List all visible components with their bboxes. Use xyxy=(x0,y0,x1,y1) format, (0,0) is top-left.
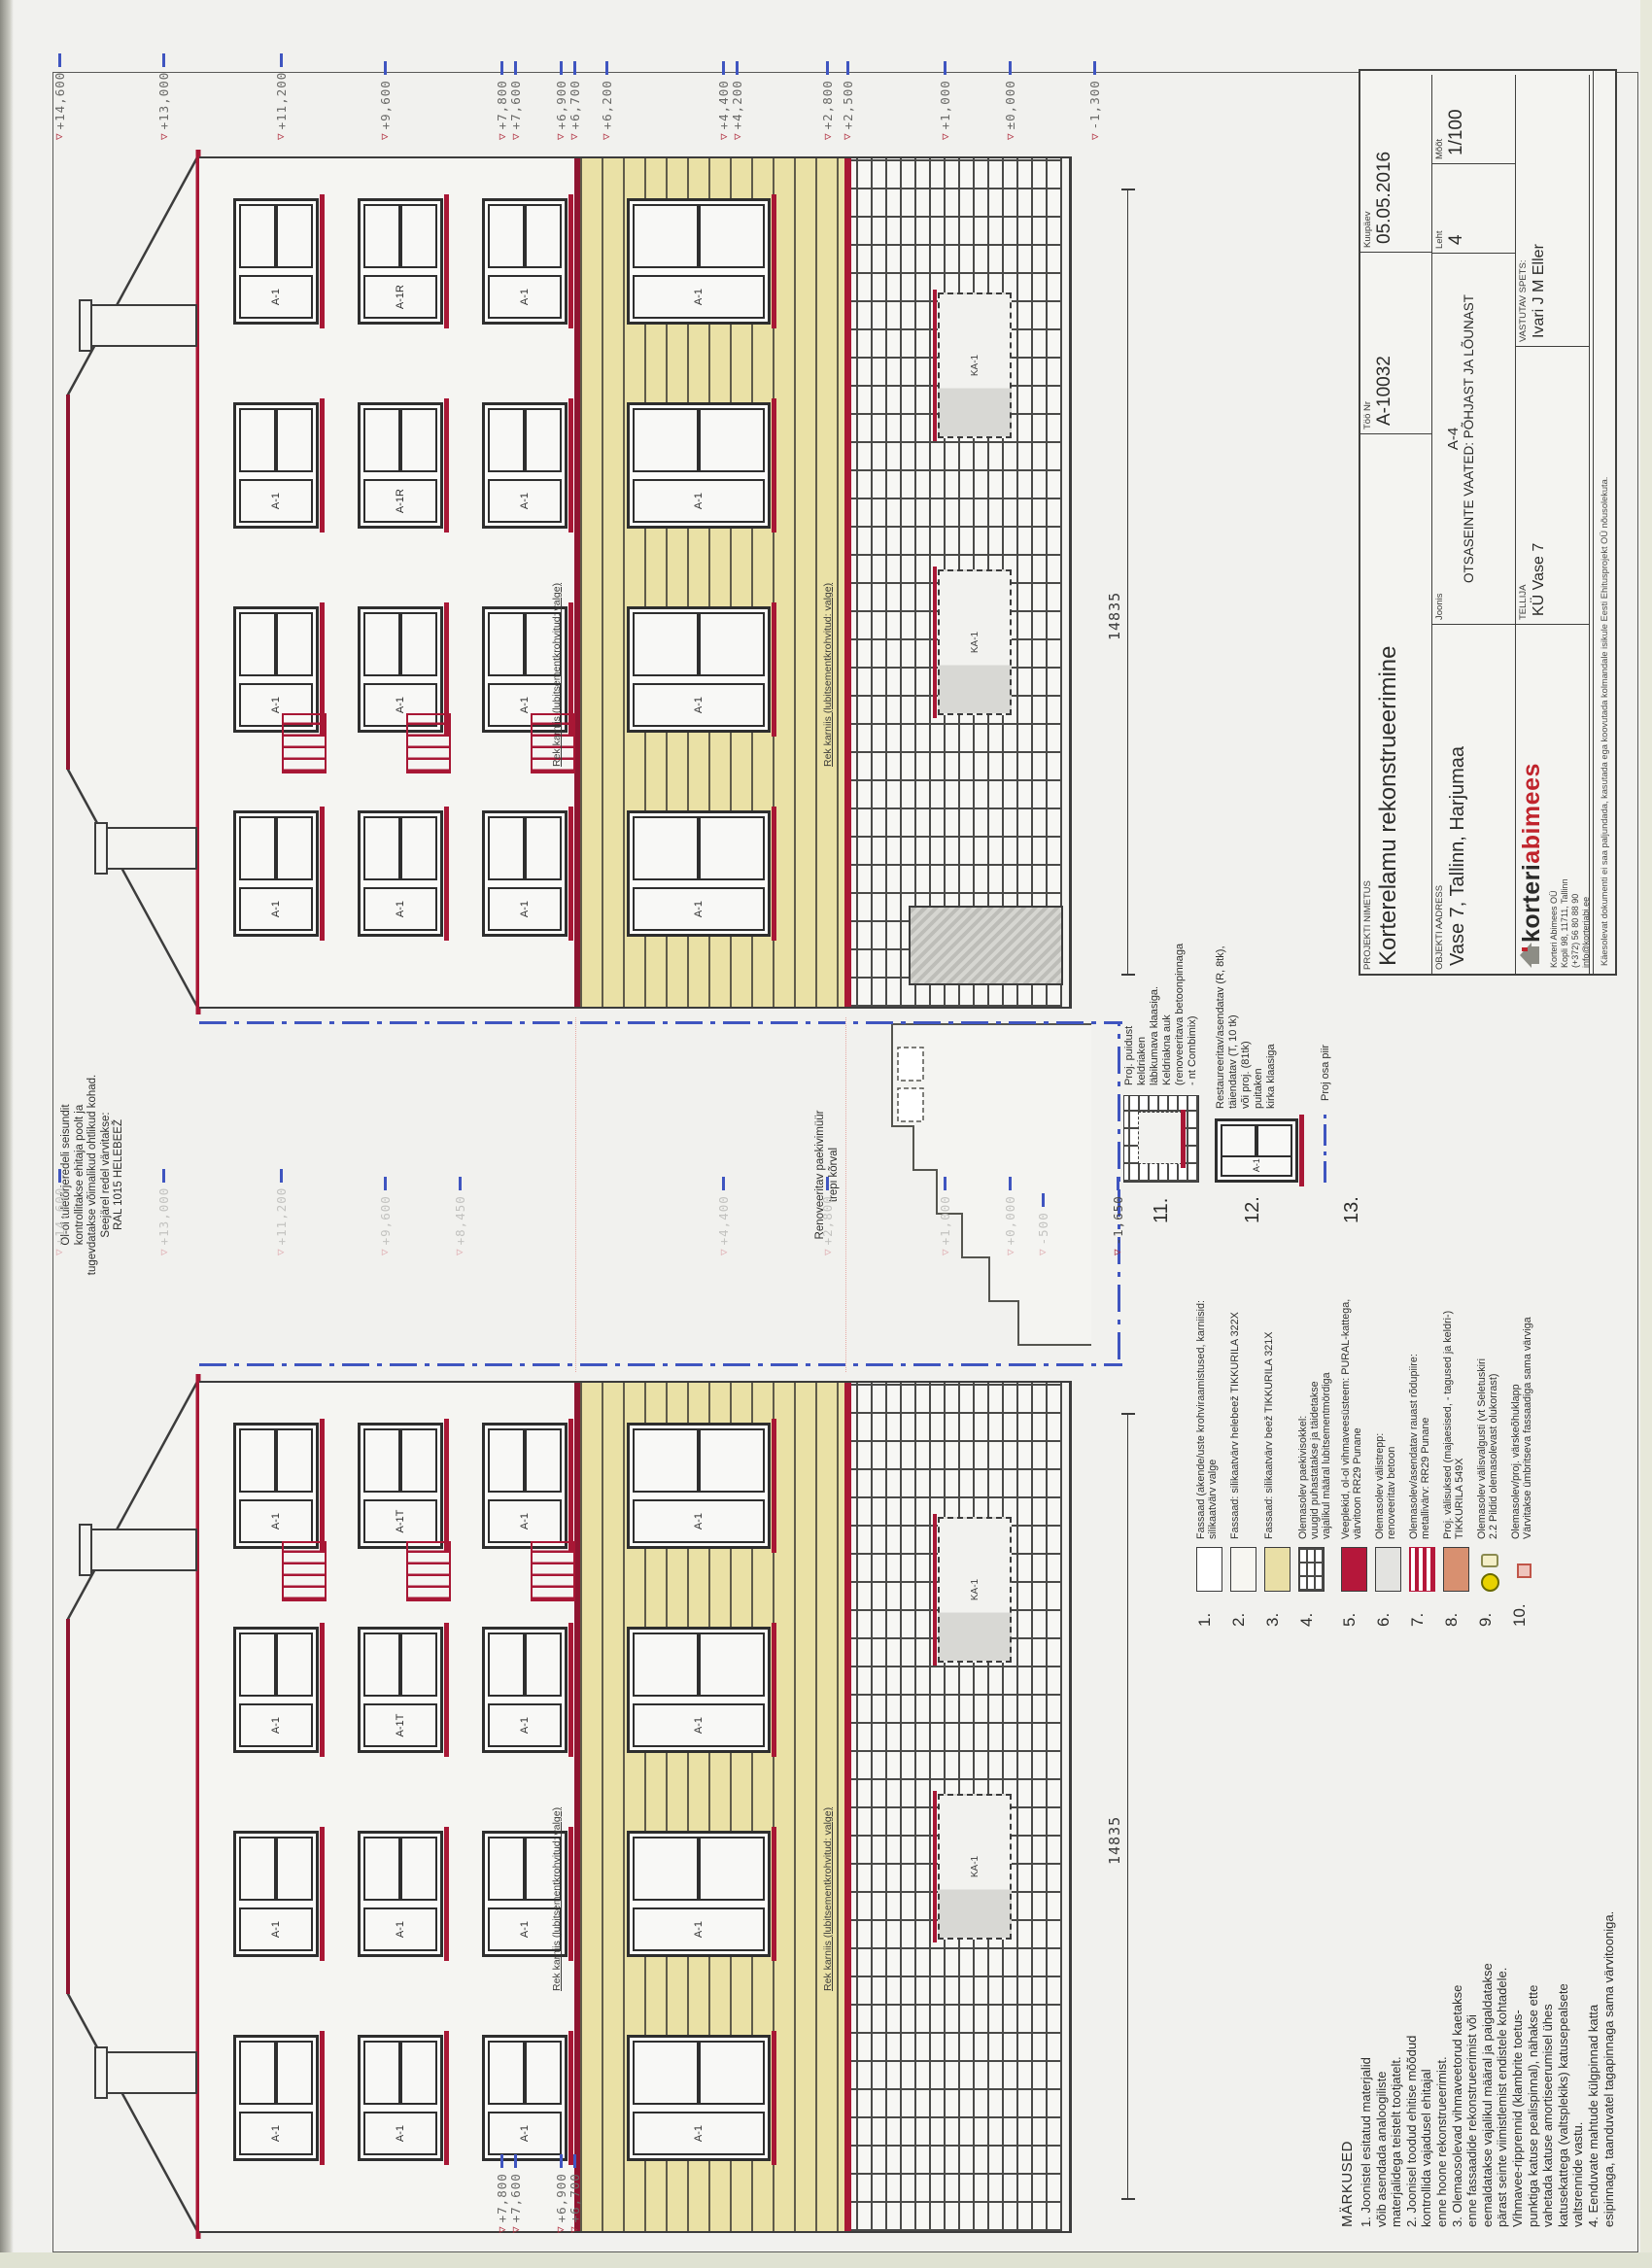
level-value: +7,600 xyxy=(508,2173,523,2222)
window-pane xyxy=(525,1428,562,1493)
window-label: A-1R xyxy=(363,275,437,319)
level-tick xyxy=(162,53,165,67)
date-value: 05.05.2016 xyxy=(1373,75,1396,252)
window-pane xyxy=(633,408,699,472)
work-no-value: A-10032 xyxy=(1373,253,1396,433)
level-tick xyxy=(560,2154,563,2168)
window: A-1T xyxy=(358,1627,443,1753)
level-tick xyxy=(560,61,563,75)
legend-item: 9.Olemasolev välisvalgusti (vt Seletuski… xyxy=(1476,1238,1503,1627)
facade-wall: A-1A-1A-1A-1A-1A-1A-1RA-1RA-1A-1A-1A-1A-… xyxy=(199,156,1072,1009)
scale-label: Mõõt xyxy=(1432,75,1445,163)
level-tick xyxy=(514,2154,517,2168)
level-tick xyxy=(58,1169,61,1183)
window: A-1 xyxy=(233,198,319,325)
notes-title: MÄRKUSED xyxy=(1339,1644,1356,2227)
level-value: ±0,000 xyxy=(1003,80,1017,129)
legend-item: 10.Olemasolev/proj. värskeõhuklappVärvit… xyxy=(1510,1238,1537,1627)
legend-text-line: Proj. välisuksed (majaesised, - tagused … xyxy=(1442,1311,1454,1539)
legend-item-number: 7. xyxy=(1408,1592,1428,1627)
client-cell: TELLIJA KÜ Vase 7 xyxy=(1516,346,1590,624)
level-tick xyxy=(722,1177,725,1190)
legend-text-line: Olemasolev välistrepp: xyxy=(1374,1433,1386,1539)
level-value: +11,200 xyxy=(274,72,289,130)
window: A-1 xyxy=(482,198,568,325)
note-line: materjalidega teistelt tootjatelt. xyxy=(1389,1644,1404,2227)
window-pane xyxy=(363,408,400,472)
elevation-vaade-pohjast: A-1A-1A-1A-1A-1A-1A-1TA-1TA-1A-1A-1A-1A-… xyxy=(58,1374,1137,2239)
window-label: A-1 xyxy=(488,887,562,931)
level-mark-right: ▽+6,900 xyxy=(554,61,568,140)
level-mark-right: ▽+6,200 xyxy=(600,61,614,140)
note-line: punktiga katuse pealispinnal), nähakse e… xyxy=(1526,1644,1541,2227)
level-mark-right: ▽+13,000 xyxy=(156,53,171,140)
legend-text-line: Olemasolev/proj. värskeõhuklapp xyxy=(1510,1317,1522,1539)
window: A-1 xyxy=(358,810,443,937)
window-pane xyxy=(363,816,400,880)
drawing-title: OTSASEINTE VAATED: PÕHJAST JA LÕUNAST xyxy=(1462,254,1477,624)
window-label: A-1 xyxy=(239,2112,313,2155)
level-mark-right: ▽+2,800 xyxy=(820,61,835,140)
level-mark-right: ▽+1,000 xyxy=(938,61,952,140)
basement-window: KA-1 xyxy=(938,292,1012,438)
level-marker-icon: ▽ xyxy=(602,132,611,140)
level-marker-icon: ▽ xyxy=(823,1248,833,1255)
legend-text-line: puitaken xyxy=(1253,945,1265,1109)
paekivi-label-line: Renoveeritav paekivimüür xyxy=(814,1019,828,1330)
company-info-line: Kopli 98, 11711, Tallinn xyxy=(1560,631,1570,968)
legend-item-text: Olemasolev välisvalgusti (vt Seletuskiri… xyxy=(1476,1358,1499,1539)
window-pane xyxy=(1221,1124,1256,1157)
level-value: +0,000 xyxy=(1003,1195,1017,1245)
level-marker-icon: ▽ xyxy=(276,1248,286,1255)
window-pane xyxy=(239,204,276,268)
legend-text-line: keldriaken xyxy=(1136,944,1149,1085)
level-mark-right: ▽+9,600 xyxy=(378,61,393,140)
legend-detail-item: 13.Proj osa piir xyxy=(1314,932,1363,1223)
level-mark-left: ▽+7,600 xyxy=(508,2154,523,2233)
level-marker-icon: ▽ xyxy=(941,132,950,140)
level-marker-icon: ▽ xyxy=(569,132,579,140)
address-cell: OBJEKTI AADRESS Vase 7, Tallinn, Harjuma… xyxy=(1432,624,1516,974)
window-pane xyxy=(525,1632,562,1697)
level-mark-middle: ▽+13,000 xyxy=(156,1169,171,1255)
window-pane xyxy=(525,408,562,472)
level-marker-icon: ▽ xyxy=(1006,132,1015,140)
drawing-code: A-4 xyxy=(1445,254,1462,624)
legend-item-text: Olemasolev välistrepp:renoveeritav betoo… xyxy=(1374,1433,1397,1539)
cornice-band xyxy=(573,158,580,1007)
facade-wall: A-1A-1A-1A-1A-1A-1A-1TA-1TA-1A-1A-1A-1A-… xyxy=(199,1381,1072,2233)
legend-text-line: Fassaad: silikaatvärv beež TIKKURILA 321… xyxy=(1263,1332,1275,1539)
drawing-label: Joonis xyxy=(1432,254,1445,624)
scale-value: 1/100 xyxy=(1445,75,1468,163)
scan-edge-bottom xyxy=(0,2252,1652,2268)
level-tick xyxy=(280,53,283,67)
level-value: +2,800 xyxy=(820,80,835,129)
legend-text-line: kirka klaasiga xyxy=(1265,945,1278,1109)
level-value: +4,400 xyxy=(716,80,731,129)
window-pane xyxy=(363,612,400,676)
legend-item-text: Olemasolev/proj. värskeõhuklappVärvitaks… xyxy=(1510,1317,1533,1539)
level-mark-right: ▽-1,300 xyxy=(1087,61,1102,140)
legend-item-number: 3. xyxy=(1263,1592,1283,1627)
legend-details: 11.Proj. puidustkeldriakenläbikumava kla… xyxy=(1123,932,1379,1223)
window: A-1R xyxy=(358,198,443,325)
window: A-1 xyxy=(482,1627,568,1753)
window-pane xyxy=(400,1632,437,1697)
window-label: A-1 xyxy=(633,683,765,727)
dimension-line xyxy=(1127,1413,1128,2200)
note-line: esipinnaga, taanduvatel tagapinnaga sama… xyxy=(1601,1644,1617,2227)
legend-text-line: - nt Combimix) xyxy=(1187,944,1199,1085)
company-logo: korteriabimees xyxy=(1518,631,1546,968)
window-pane xyxy=(699,408,765,472)
legend-swatch xyxy=(1264,1547,1291,1592)
legend-item-text: Fassaad: silikaatvärv beež TIKKURILA 321… xyxy=(1263,1332,1275,1539)
level-mark-right: ▽+6,700 xyxy=(568,61,582,140)
construction-guide-line xyxy=(845,1017,846,1372)
level-mark-middle: ▽+1,000 xyxy=(938,1177,952,1255)
window-label: A-1 xyxy=(488,2112,562,2155)
level-mark-right: ▽±0,000 xyxy=(1003,61,1017,140)
legend-text-line: 2.2 Pildid olemasolevast olukorrast) xyxy=(1488,1358,1499,1539)
client-label: TELLIJA xyxy=(1516,347,1529,624)
legend-item-text: Proj. välisuksed (majaesised, - tagused … xyxy=(1442,1311,1465,1539)
level-tick xyxy=(722,61,725,75)
legend: 1.Fassaad (akende/uste krohviraamistused… xyxy=(1195,1238,1544,1627)
scale-cell: Mõõt 1/100 xyxy=(1432,75,1516,163)
legend-text-line: Proj osa piir xyxy=(1320,1045,1332,1101)
legend-text-line: läbikumava klaasiga. xyxy=(1149,944,1161,1085)
balcony-railing xyxy=(282,713,327,773)
legend-item-number: 12. xyxy=(1242,1183,1264,1223)
window: A-1 xyxy=(627,1627,771,1753)
level-marker-icon: ▽ xyxy=(719,1248,729,1255)
legend-item-number: 5. xyxy=(1340,1592,1359,1627)
note-line: 1. Joonistel esitatud materjalid xyxy=(1359,1644,1374,2227)
window-pane xyxy=(633,816,699,880)
note-line: katusekattega (valtsplekiks) katusepeals… xyxy=(1556,1644,1571,2227)
window-label: A-1 xyxy=(633,1907,765,1951)
level-mark-right: ▽+4,400 xyxy=(716,61,731,140)
window: A-1 xyxy=(358,2035,443,2161)
project-name: Korterelamu rekonstrueerimine xyxy=(1373,434,1404,974)
level-value: +2,500 xyxy=(841,80,855,129)
level-marker-icon: ▽ xyxy=(498,132,507,140)
window-pane xyxy=(488,1428,525,1493)
legend-swatch xyxy=(1298,1547,1325,1592)
window-pane xyxy=(363,2041,400,2105)
window-pane xyxy=(276,408,313,472)
window: A-1 xyxy=(627,810,771,937)
date-cell: Kuupäev 05.05.2016 xyxy=(1360,75,1432,252)
legend-text-line: Fassaad: silikaatvärv helebeež TIKKURILA… xyxy=(1229,1312,1241,1539)
window-pane xyxy=(699,204,765,268)
window-label: A-1 xyxy=(488,1499,562,1543)
legend-item-text: Veeplekid, ol-ol vihmaveesüsteem: PURAL-… xyxy=(1340,1299,1363,1539)
level-tick xyxy=(280,1169,283,1183)
dimension-value: 14835 xyxy=(1106,592,1123,640)
level-tick xyxy=(384,61,387,75)
ladder-note-line: Seejärel redel värvitakse: xyxy=(100,1039,114,1311)
company-info: Korteri Abimees OÜKopli 98, 11711, Talli… xyxy=(1549,631,1590,968)
window-pane xyxy=(488,816,525,880)
level-marker-icon: ▽ xyxy=(556,132,566,140)
level-value: +6,200 xyxy=(600,80,614,129)
legend-swatch xyxy=(1511,1547,1537,1592)
window-label: A-1R xyxy=(363,479,437,523)
legend-swatch xyxy=(1375,1547,1401,1592)
level-tick xyxy=(573,61,576,75)
legend-detail-text: Restaureeritav/asendatav (R, 8tk),täiend… xyxy=(1215,945,1278,1109)
house-icon xyxy=(1520,943,1539,968)
legend-detail-item: 12.A-1Restaureeritav/asendatav (R, 8tk),… xyxy=(1215,932,1298,1223)
level-marker-icon: ▽ xyxy=(54,132,64,140)
level-value: +7,800 xyxy=(495,2173,509,2222)
legend-text-line: renoveeritav betoon xyxy=(1386,1433,1397,1539)
legend-text-line: Keldriakna auk xyxy=(1161,944,1174,1085)
window: A-1 xyxy=(1215,1118,1298,1183)
window-pane xyxy=(239,1837,276,1901)
legend-text-line: värvitoon RR29 Punane xyxy=(1352,1299,1363,1539)
legend-text-line: täiendatav (T, 10 tk) xyxy=(1227,945,1240,1109)
level-mark-middle: ▽-500 xyxy=(1036,1193,1050,1255)
window-pane xyxy=(633,1632,699,1697)
window-pane xyxy=(363,1428,400,1493)
legend-text-line: Olemasolev/asendatav rauast rõdupiire: xyxy=(1408,1354,1420,1539)
lamp-icon xyxy=(1481,1573,1499,1592)
note-line: vahetada katuse amortiseerumisel ühes xyxy=(1540,1644,1556,2227)
window-pane xyxy=(525,204,562,268)
level-marker-icon: ▽ xyxy=(733,132,742,140)
legend-item: 5.Veeplekid, ol-ol vihmaveesüsteem: PURA… xyxy=(1340,1238,1367,1627)
spec-label: VASTUTAV SPETS: xyxy=(1516,75,1529,346)
veeplekk-band xyxy=(844,1383,851,2231)
legend-text-line: Olemasolev paekivisokkel: xyxy=(1297,1372,1309,1539)
level-value: +6,900 xyxy=(554,80,568,129)
level-marker-icon: ▽ xyxy=(1113,1248,1122,1255)
level-tick xyxy=(1117,1177,1119,1190)
window-pane xyxy=(633,1428,699,1493)
legend-swatch xyxy=(1230,1547,1256,1592)
note-line: enne hoone rekonstrueerimist. xyxy=(1434,1644,1450,2227)
level-marker-icon: ▽ xyxy=(54,1248,64,1255)
window-pane xyxy=(400,204,437,268)
window-label: A-1 xyxy=(488,1703,562,1747)
elevation-vaade-lounast: A-1A-1A-1A-1A-1A-1A-1RA-1RA-1A-1A-1A-1A-… xyxy=(58,150,1137,1014)
window-label: A-1 xyxy=(633,275,765,319)
window: A-1 xyxy=(233,810,319,937)
window-label: A-1 xyxy=(239,887,313,931)
level-mark-left: ▽+7,800 xyxy=(495,2154,509,2233)
window-label: A-1 xyxy=(633,887,765,931)
legend-swatch xyxy=(1443,1547,1469,1592)
level-marker-icon: ▽ xyxy=(1006,1248,1015,1255)
legend-text-line: Värvitakse ümbritseva fassaadiga sama vä… xyxy=(1522,1317,1533,1539)
level-marker-icon: ▽ xyxy=(1038,1248,1048,1255)
window: A-1 xyxy=(627,606,771,733)
cornice-label: Rek karniis (lubitsementkrohvitud: valge… xyxy=(551,583,563,767)
level-marker-icon: ▽ xyxy=(455,1248,465,1255)
window: A-1 xyxy=(627,198,771,325)
window: A-1 xyxy=(482,1423,568,1549)
window-label: A-1 xyxy=(488,275,562,319)
construction-guide-line xyxy=(575,1017,576,1372)
note-line: Vihmavee-ripprennid (klambrite toetus- xyxy=(1510,1644,1526,2227)
paekivi-label: Renoveeritav paekivimüürtrepi kõrval xyxy=(814,1019,841,1330)
level-tick xyxy=(736,61,739,75)
chimney xyxy=(95,2047,196,2098)
window: A-1 xyxy=(627,1831,771,1957)
level-value: +9,600 xyxy=(378,1195,393,1245)
level-tick xyxy=(944,61,946,75)
window-pane xyxy=(276,2041,313,2105)
window: A-1 xyxy=(482,402,568,529)
window-label: A-1 xyxy=(633,479,765,523)
drawing-cell: Joonis A-4 OTSASEINTE VAATED: PÕHJAST JA… xyxy=(1432,253,1516,624)
level-mark-right: ▽+11,200 xyxy=(274,53,289,140)
level-value: +6,700 xyxy=(568,80,582,129)
window-pane xyxy=(1256,1124,1292,1157)
level-mark-right: ▽+2,500 xyxy=(841,61,855,140)
proj-boundary-symbol xyxy=(1324,1111,1326,1183)
level-tick xyxy=(384,1177,387,1190)
legend-swatch xyxy=(1341,1547,1367,1592)
window-pane xyxy=(276,1632,313,1697)
logo-cell: korteriabimees Korteri Abimees OÜKopli 9… xyxy=(1516,624,1590,974)
level-value: +7,800 xyxy=(495,80,509,129)
client-value: KÜ Vase 7 xyxy=(1529,347,1550,624)
level-value: -500 xyxy=(1036,1212,1050,1245)
keldriaken-detail-figure xyxy=(1123,1095,1199,1183)
level-mark-middle: ▽-1,650 xyxy=(1111,1177,1125,1255)
level-tick xyxy=(846,61,849,75)
ladder-note-line: kontrollitakse ehitaja poolt ja xyxy=(74,1039,87,1311)
sheet-cell: Leht 4 xyxy=(1432,163,1516,253)
scan-edge-shadow xyxy=(0,0,14,2268)
level-tick xyxy=(162,1169,165,1183)
level-marker-icon: ▽ xyxy=(159,132,169,140)
legend-text-line: Olemasolev välisvalgusti (vt Seletuskiri xyxy=(1476,1358,1488,1539)
chimney xyxy=(80,300,196,351)
level-marker-icon: ▽ xyxy=(556,2225,566,2233)
note-line: eemaldatakse vajalikul määral ja paigald… xyxy=(1480,1644,1496,2227)
chimney xyxy=(80,1525,196,1575)
notes-block: MÄRKUSED 1. Joonistel esitatud materjali… xyxy=(1339,1644,1616,2227)
window-pane xyxy=(239,408,276,472)
window-label: A-1 xyxy=(363,1907,437,1951)
sheet-label: Leht xyxy=(1432,164,1445,253)
window-pane xyxy=(699,1428,765,1493)
company-info-line: (+372) 56 80 88 90 xyxy=(1570,631,1581,968)
legend-item-number: 1. xyxy=(1195,1592,1215,1627)
level-value: +14,600 xyxy=(52,72,67,130)
legend-item-number: 2. xyxy=(1229,1592,1249,1627)
window-pane xyxy=(699,2041,765,2105)
note-line: kontrollida vajadusel ehitajal xyxy=(1419,1644,1434,2227)
window-pane xyxy=(400,2041,437,2105)
window: A-1 xyxy=(233,1423,319,1549)
legend-text-line: (renoveeritava betoonpinnaga xyxy=(1174,944,1187,1085)
balcony-railing xyxy=(282,1541,327,1601)
date-label: Kuupäev xyxy=(1360,75,1373,252)
cornice-label: Rek karniis (lubitsementkrohvitud: valge… xyxy=(822,1807,834,1991)
level-mark-right: ▽+14,600 xyxy=(52,53,67,140)
paekivi-label-line: trepi kõrval xyxy=(828,1019,842,1330)
level-tick xyxy=(605,61,608,75)
level-tick xyxy=(459,1177,462,1190)
level-tick xyxy=(1042,1193,1045,1207)
company-info-line: info@korteriabi.ee xyxy=(1581,631,1590,968)
legend-item: 2.Fassaad: silikaatvärv helebeež TIKKURI… xyxy=(1229,1238,1256,1627)
window-pane xyxy=(633,204,699,268)
proj-boundary-line xyxy=(199,1021,1122,1024)
legend-item: 1.Fassaad (akende/uste krohviraamistused… xyxy=(1195,1238,1222,1627)
dimension-value: 14835 xyxy=(1106,1816,1123,1865)
level-mark-right: ▽+7,800 xyxy=(495,61,509,140)
window-pane xyxy=(239,1632,276,1697)
work-no-cell: Töö Nr A-10032 xyxy=(1360,252,1432,433)
project-name-cell: PROJEKTI NIMETUS Korterelamu rekonstruee… xyxy=(1360,433,1432,974)
window-pane xyxy=(525,2041,562,2105)
level-marker-icon: ▽ xyxy=(569,2225,579,2233)
roof xyxy=(58,150,202,1014)
legend-item-text: Olemasolev paekivisokkel:vuugid puhastat… xyxy=(1297,1372,1333,1539)
level-value: +6,700 xyxy=(568,2173,582,2222)
sheet-value: 4 xyxy=(1445,164,1468,253)
note-line: võib asendada analoogiliste xyxy=(1374,1644,1390,2227)
legend-item: 6.Olemasolev välistrepp:renoveeritav bet… xyxy=(1374,1238,1401,1627)
window-pane xyxy=(239,1428,276,1493)
window-pane xyxy=(633,2041,699,2105)
window-label: A-1 xyxy=(633,1703,765,1747)
window-pane xyxy=(276,1428,313,1493)
level-tick xyxy=(500,2154,503,2168)
window-pane xyxy=(525,816,562,880)
window-pane xyxy=(488,1837,525,1901)
window: A-1 xyxy=(627,2035,771,2161)
level-value: +1,000 xyxy=(938,1195,952,1245)
window-pane xyxy=(488,1632,525,1697)
legend-item-text: Olemasolev/asendatav rauast rõdupiire:me… xyxy=(1408,1354,1431,1539)
title-block: PROJEKTI NIMETUS Korterelamu rekonstruee… xyxy=(1359,69,1617,976)
work-no-label: Töö Nr xyxy=(1360,253,1373,433)
spec-cell: VASTUTAV SPETS: Ivari J M Eller xyxy=(1516,75,1590,346)
window-label: A-1 xyxy=(363,887,437,931)
window-label: A-1 xyxy=(239,275,313,319)
window: A-1 xyxy=(233,2035,319,2161)
legend-text-line: vuugid puhastatakse ja täidetakse xyxy=(1309,1372,1321,1539)
window-pane xyxy=(276,816,313,880)
level-value: +2,800 xyxy=(820,1195,835,1245)
legend-item-text: Fassaad: silikaatvärv helebeež TIKKURILA… xyxy=(1229,1312,1241,1539)
scanned-drawing-sheet: { "titleblock": { "work_no_label": "Töö … xyxy=(0,0,1652,2268)
window-pane xyxy=(400,408,437,472)
window-pane xyxy=(276,204,313,268)
window-pane xyxy=(276,1837,313,1901)
window-pane xyxy=(633,1837,699,1901)
window-pane xyxy=(699,1837,765,1901)
level-marker-icon: ▽ xyxy=(1090,132,1100,140)
legend-text-line: või proj. (81tk) xyxy=(1240,945,1253,1109)
lamp-small-icon xyxy=(1481,1554,1498,1567)
level-value: +7,600 xyxy=(508,80,523,129)
legend-item-number: 6. xyxy=(1374,1592,1394,1627)
window-label: A-1 xyxy=(239,1703,313,1747)
puitaken-detail-figure: A-1 xyxy=(1215,1118,1298,1183)
level-marker-icon: ▽ xyxy=(823,132,833,140)
